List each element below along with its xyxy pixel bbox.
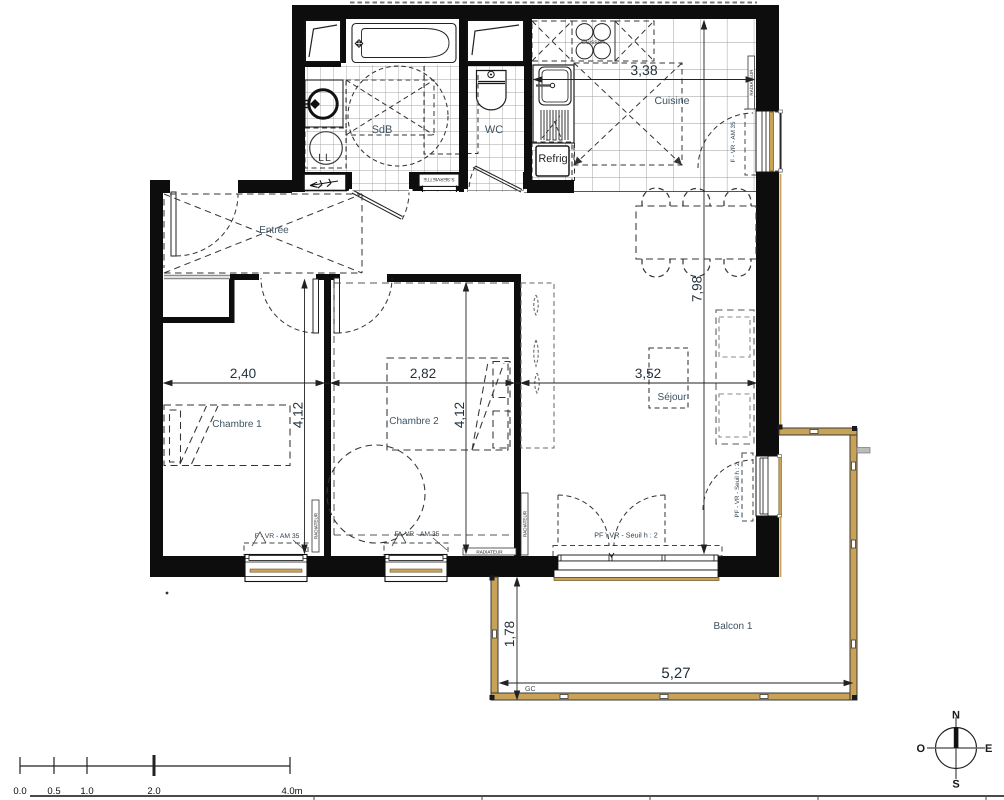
svg-text:LL: LL bbox=[318, 152, 332, 164]
svg-text:WC: WC bbox=[485, 124, 503, 136]
svg-text:RADIATEUR: RADIATEUR bbox=[749, 69, 754, 96]
svg-text:GC: GC bbox=[525, 686, 536, 693]
svg-text:S: S bbox=[952, 779, 959, 791]
svg-text:RADIATEUR: RADIATEUR bbox=[314, 512, 319, 539]
svg-text:S.SERVIETTE: S.SERVIETTE bbox=[423, 176, 454, 182]
svg-text:5,27: 5,27 bbox=[661, 665, 690, 682]
svg-text:4,12: 4,12 bbox=[291, 402, 306, 428]
svg-text:O: O bbox=[916, 743, 925, 755]
svg-text:E: E bbox=[985, 743, 992, 755]
svg-text:Cuisine: Cuisine bbox=[654, 95, 689, 107]
svg-text:3,38: 3,38 bbox=[630, 62, 657, 78]
svg-text:RADIATEUR: RADIATEUR bbox=[523, 510, 528, 537]
svg-text:Chambre 1: Chambre 1 bbox=[212, 419, 262, 430]
svg-text:Cuisson: Cuisson bbox=[581, 39, 605, 46]
svg-text:SdB: SdB bbox=[372, 124, 393, 136]
svg-text:Chambre 2: Chambre 2 bbox=[389, 416, 439, 427]
svg-text:Balcon 1: Balcon 1 bbox=[714, 621, 753, 632]
svg-text:2,40: 2,40 bbox=[230, 366, 256, 381]
svg-text:4,12: 4,12 bbox=[452, 402, 467, 428]
svg-text:PF \ VR - Seuil h : 2: PF \ VR - Seuil h : 2 bbox=[594, 531, 658, 540]
svg-text:7,98: 7,98 bbox=[690, 276, 705, 302]
svg-text:3,52: 3,52 bbox=[635, 366, 661, 381]
svg-text:0.0: 0.0 bbox=[13, 786, 26, 797]
svg-text:F - VR - AM 35: F - VR - AM 35 bbox=[730, 121, 737, 162]
svg-text:2,82: 2,82 bbox=[410, 366, 436, 381]
svg-text:N: N bbox=[952, 710, 960, 722]
svg-text:Refrig: Refrig bbox=[538, 153, 567, 165]
svg-text:Séjour: Séjour bbox=[658, 392, 688, 403]
svg-text:PF - VR - Seuil h : 2: PF - VR - Seuil h : 2 bbox=[734, 462, 741, 518]
svg-text:RADIATEUR: RADIATEUR bbox=[476, 550, 503, 555]
svg-text:1,78: 1,78 bbox=[502, 621, 517, 647]
svg-text:Entrée: Entrée bbox=[259, 225, 289, 236]
